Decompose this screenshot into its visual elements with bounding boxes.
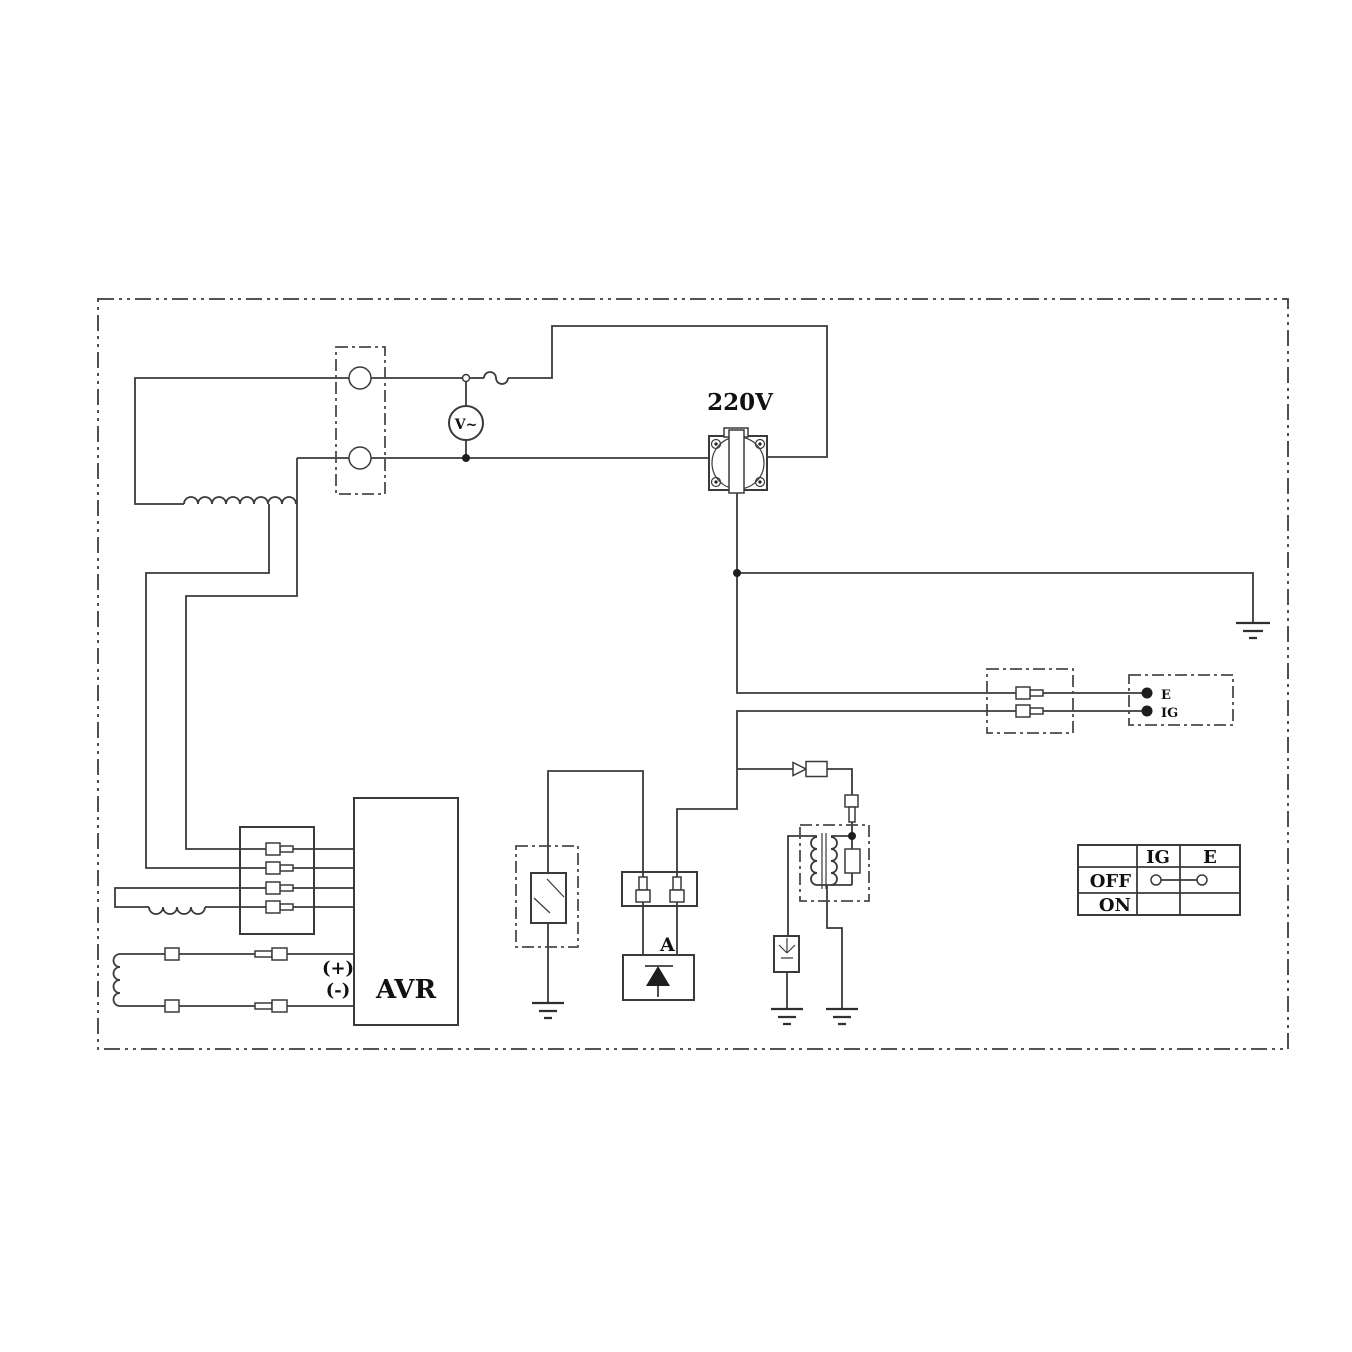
junction-dot bbox=[848, 832, 856, 840]
rectifier-label: A bbox=[659, 934, 675, 956]
charge-connector-pair bbox=[165, 948, 287, 1012]
table-row-on-label: ON bbox=[1099, 895, 1131, 916]
table-header-ig: IG bbox=[1146, 847, 1170, 868]
avr-connector-block bbox=[240, 827, 314, 934]
bullet-connector bbox=[793, 762, 827, 777]
sub-coil bbox=[149, 907, 205, 914]
secondary-coil bbox=[831, 837, 837, 885]
ground-icon-spark-plug bbox=[771, 1009, 803, 1024]
fuse bbox=[484, 372, 508, 384]
ground-icon-condenser bbox=[532, 1003, 564, 1018]
resistor-icon bbox=[845, 849, 860, 873]
engine-switch-table: IG E OFF ON bbox=[1078, 845, 1240, 916]
generator-wiring-diagram: V~ 220V bbox=[0, 0, 1352, 1352]
ground-icon-main bbox=[1236, 623, 1270, 638]
outlet-220v: 220V bbox=[707, 389, 774, 577]
wiring-diagram-page: V~ 220V bbox=[0, 0, 1352, 1352]
plug-cap-connector bbox=[845, 795, 858, 822]
avr-plus-label: (+) bbox=[322, 958, 354, 979]
table-header-e: E bbox=[1203, 847, 1217, 868]
condenser-box bbox=[516, 846, 578, 947]
terminal-circle-bottom bbox=[349, 447, 371, 469]
rectifier-connector bbox=[622, 872, 697, 906]
core-icon bbox=[822, 833, 826, 889]
avr-box: (+) (-) AVR bbox=[322, 798, 458, 1025]
outlet-slot bbox=[729, 430, 744, 493]
voltmeter-tap-node bbox=[463, 375, 470, 382]
terminal-e-label: E bbox=[1161, 688, 1171, 703]
junction-dot bbox=[462, 454, 470, 462]
primary-coil bbox=[811, 837, 817, 885]
frame bbox=[98, 299, 1288, 1049]
output-terminal-block bbox=[336, 347, 385, 494]
terminal-e-dot bbox=[1142, 688, 1153, 699]
charge-coil bbox=[114, 954, 121, 1006]
avr-label: AVR bbox=[375, 975, 436, 1005]
e-ig-terminals: E IG bbox=[1129, 675, 1233, 725]
outlet-voltage-label: 220V bbox=[707, 389, 774, 416]
terminal-circle-top bbox=[349, 367, 371, 389]
ground-icon-ignition-coil bbox=[826, 1009, 858, 1024]
avr-minus-label: (-) bbox=[326, 980, 351, 1001]
voltmeter-label: V~ bbox=[454, 417, 478, 433]
terminal-ig-label: IG bbox=[1161, 706, 1178, 721]
rectifier-diode-box: A bbox=[623, 934, 694, 1000]
table-row-off-label: OFF bbox=[1090, 871, 1131, 892]
spark-plug bbox=[774, 936, 799, 972]
junction-dot bbox=[733, 569, 741, 577]
main-coil bbox=[184, 497, 296, 504]
stop-switch-connector bbox=[987, 669, 1073, 733]
terminal-ig-dot bbox=[1142, 706, 1153, 717]
connector-pin bbox=[266, 843, 293, 913]
